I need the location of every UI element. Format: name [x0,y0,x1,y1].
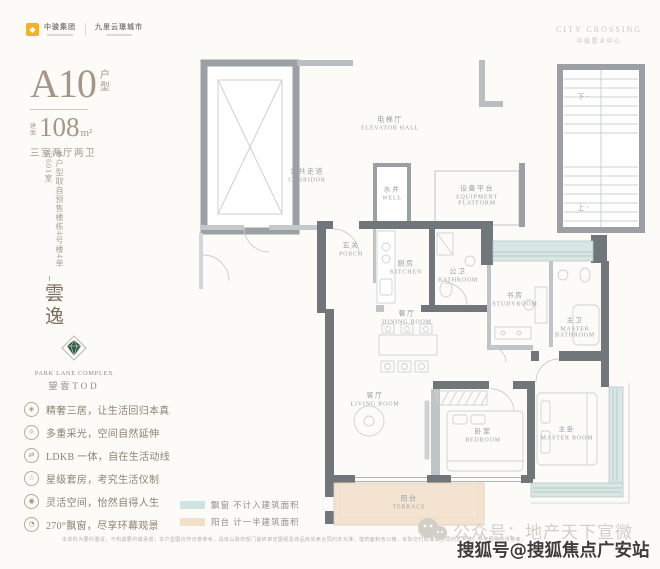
area-prefix: 建面 [30,124,37,138]
brand-name: 中骏集团 [44,22,76,32]
room-name-en: STUDYROOM [492,302,537,308]
project-logo-cn: 望雲TOD [26,379,122,392]
room-name-en: BATHROOM [438,278,478,284]
unit-divider [30,109,88,110]
stairs [560,67,642,230]
room-name-en: PORCH [339,252,363,258]
legend: 飘窗 不计入建筑面积 阳台 计一半建筑面积 [180,499,300,533]
project-brand-en: CITY CROSSING [556,25,642,34]
room-name-en: CORRIDOR [288,178,325,184]
feature-list: ◈ 精奢三居，让生活回归本真 ☼ 多重采光，空间自然延伸 ⇄ LDKB 一体，自… [24,402,170,540]
room-name-cn: 厨房 [390,259,422,269]
feature-text: 灵活空间，怡然自得人生 [46,494,159,509]
room-label-dining-room: 餐厅 DINING ROOM [382,309,432,326]
unit-info: A10 户型 建面 108 m² 三室两厅两卫 [30,64,111,159]
room-label-master-room: 主卧 MASTER ROOM [541,425,594,442]
room-label-kitchen: 厨房 KITCHEN [390,259,422,276]
room-label-terrace: 阳台 TERRACE [393,494,426,511]
feature-item: ◉ 灵活空间，怡然自得人生 [24,494,170,509]
room-name-en: TERRACE [393,505,426,511]
brand-icon: ◆ [26,23,39,36]
room-name-cn: 设备平台 [448,184,506,194]
feature-text: 多重采光，空间自然延伸 [46,425,159,440]
room-name-en: DINING ROOM [382,320,432,326]
area-value: 108 [39,114,80,141]
room-name-cn: 主卫 [548,316,602,326]
circulation-icon: ⇄ [24,448,39,463]
project-brand-cn: 中骏置业中心 [556,36,642,45]
room-name-en: ELEVATOR HALL [361,126,419,132]
room-name-cn: 书房 [492,291,537,301]
feature-text: 星级套房，考究生活仪制 [46,471,159,486]
feature-item: ⇄ LDKB 一体，自在生活动线 [24,448,170,463]
bay-window-swatch [180,501,205,509]
room-label-master-bathroom: 主卫 MASTER BATHROOM [548,316,602,339]
room-name-cn: 公共走道 [288,167,325,177]
room-label-bathroom: 公卫 BATHROOM [438,267,478,284]
room-label-equipment-platform: 设备平台 EQUIPMENT PLATFORM [448,184,506,207]
gem-logo-icon [60,334,88,362]
elevator-shaft [204,63,296,231]
brand-subtext-bar [47,34,73,36]
room-name-en: MASTER BATHROOM [548,327,602,339]
star-icon: ☆ [24,471,39,486]
vertical-divider [49,276,50,281]
eye-icon: ◉ [24,494,39,509]
sun-icon: ☼ [24,425,39,440]
developer-logo: ◆ 中骏集团 九里云璟城市 [26,22,143,36]
feature-item: ◔ 270°飘窗，尽享环幕观景 [24,517,170,532]
terrace-swatch [180,518,205,526]
room-name-cn: 餐厅 [382,309,432,319]
brand-tagline: 九里云璟城市 [95,22,143,32]
series-name: 雲逸 [39,283,66,329]
room-name-cn: 客厅 [351,391,400,401]
room-label-corridor: 公共走道 CORRIDOR [288,167,325,184]
stairs-up-label: 上 · [577,203,588,213]
floorplan: 电梯厅 ELEVATOR HALL 公共走道 CORRIDOR 水井 WELL … [185,55,645,540]
logo-divider [85,23,86,36]
stairs-down-label: 下 · [577,92,588,102]
room-name-cn: 公卫 [438,267,478,277]
project-logo: PARK LANE COMPLEX 望雲TOD [26,334,122,392]
wechat-icon [416,516,448,544]
room-label-studyroom: 书房 STUDYROOM [492,291,537,308]
room-name-en: LIVING ROOM [351,402,400,408]
gem-icon: ◈ [24,402,39,417]
legend-row-terrace: 阳台 计一半建筑面积 [180,516,300,528]
legend-label: 阳台 计一半建筑面积 [211,516,300,528]
room-label-porch: 玄关 PORCH [339,241,363,258]
project-logo-en: PARK LANE COMPLEX [26,370,122,377]
room-label-well: 水井 WELL [382,185,402,202]
room-name-cn: 阳台 [393,494,426,504]
unit-type-suffix: 户型 [100,70,111,93]
brand-name-group: 中骏集团 [44,22,76,36]
feature-item: ☼ 多重采光，空间自然延伸 [24,425,170,440]
room-name-en: WELL [382,196,402,202]
room-name-en: BEDROOM [465,438,501,444]
room-name-en: MASTER ROOM [541,436,594,442]
room-label-bedroom: 卧室 BEDROOM [465,427,501,444]
feature-item: ☆ 星级套房，考究生活仪制 [24,471,170,486]
unit-source-note: 本户型取自预售楼栋4号楼4单元601室 [43,150,65,274]
room-name-cn: 水井 [382,185,402,195]
feature-text: 精奢三居，让生活回归本真 [46,402,170,417]
project-brand: CITY CROSSING 中骏置业中心 [556,25,642,45]
baywindow-icon: ◔ [24,517,39,532]
room-name-cn: 主卧 [541,425,594,435]
feature-item: ◈ 精奢三居，让生活回归本真 [24,402,170,417]
feature-text: LDKB 一体，自在生活动线 [46,448,170,463]
sohu-watermark: 搜狐号@搜狐焦点广安站 [457,537,650,562]
room-name-en: KITCHEN [390,270,422,276]
room-name-cn: 电梯厅 [361,115,419,125]
room-name-cn: 卧室 [465,427,501,437]
brand-tagline-group: 九里云璟城市 [95,22,143,36]
feature-text: 270°飘窗，尽享环幕观景 [46,517,159,532]
legend-label: 飘窗 不计入建筑面积 [211,499,300,511]
room-name-cn: 玄关 [339,241,363,251]
tagline-subtext-bar [106,34,132,36]
legend-row-bay: 飘窗 不计入建筑面积 [180,499,300,511]
room-label-living-room: 客厅 LIVING ROOM [351,391,400,408]
room-label-elevator-hall: 电梯厅 ELEVATOR HALL [361,115,419,132]
area-unit: m² [81,127,93,139]
unit-type: A10 [30,64,96,104]
room-name-en: EQUIPMENT PLATFORM [448,195,506,207]
floorplan-poster: ◆ 中骏集团 九里云璟城市 CITY CROSSING 中骏置业中心 A10 户… [0,0,660,569]
